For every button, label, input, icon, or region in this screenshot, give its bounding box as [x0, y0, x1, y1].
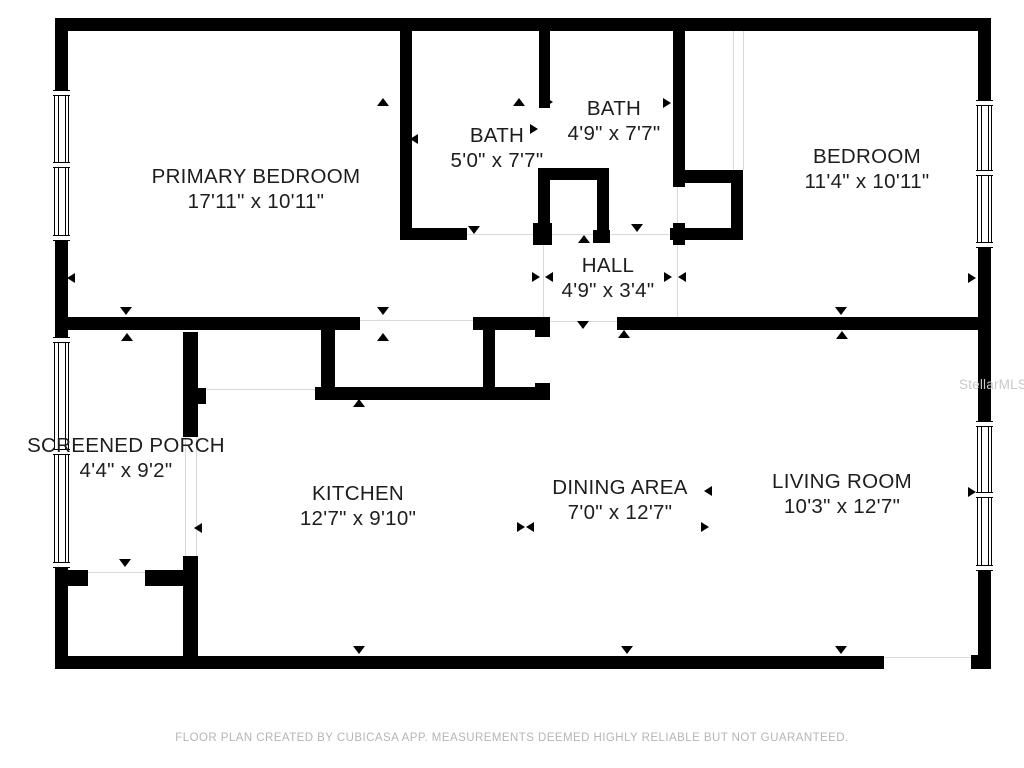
- door-marker-icon: [121, 333, 133, 341]
- room-name: PRIMARY BEDROOM: [152, 164, 361, 189]
- wall-segment: [55, 570, 88, 586]
- room-label-hall-4: HALL4'9" x 3'4": [562, 253, 655, 303]
- wall-segment: [195, 388, 206, 404]
- door-marker-icon: [835, 307, 847, 315]
- room-label-living-room-8: LIVING ROOM10'3" x 12'7": [772, 469, 912, 519]
- door-marker-icon: [377, 307, 389, 315]
- room-label-primary-bedroom-0: PRIMARY BEDROOM17'11" x 10'11": [152, 164, 361, 214]
- footer-disclaimer: FLOOR PLAN CREATED BY CUBICASA APP. MEAS…: [0, 732, 1024, 744]
- door-marker-icon: [410, 134, 418, 144]
- room-dimensions: 12'7" x 9'10": [300, 506, 416, 531]
- room-dimensions: 7'0" x 12'7": [552, 500, 687, 525]
- wall-segment: [533, 223, 552, 245]
- room-boundary-line: [884, 657, 971, 658]
- door-marker-icon: [664, 272, 672, 282]
- wall-segment: [55, 18, 68, 90]
- door-marker-icon: [577, 321, 589, 329]
- door-marker-icon: [545, 97, 553, 107]
- wall-segment: [593, 230, 610, 243]
- wall-segment: [55, 656, 884, 669]
- wall-segment: [321, 330, 335, 387]
- door-marker-icon: [663, 98, 671, 108]
- door-marker-icon: [526, 522, 534, 532]
- door-marker-icon: [968, 273, 976, 283]
- door-marker-icon: [377, 98, 389, 106]
- door-marker-icon: [119, 559, 131, 567]
- door-marker-icon: [678, 272, 686, 282]
- wall-segment: [978, 247, 991, 421]
- window-icon: [54, 90, 69, 240]
- room-name: LIVING ROOM: [772, 469, 912, 494]
- door-marker-icon: [545, 272, 553, 282]
- wall-segment: [673, 31, 685, 187]
- wall-segment: [183, 332, 198, 437]
- door-marker-icon: [618, 330, 630, 338]
- room-boundary-line: [543, 245, 544, 317]
- window-icon: [977, 421, 992, 570]
- door-marker-icon: [120, 307, 132, 315]
- room-boundary-line: [88, 572, 145, 573]
- door-marker-icon: [578, 235, 590, 243]
- room-label-bath-2: BATH4'9" x 7'7": [568, 96, 661, 146]
- room-dimensions: 11'4" x 10'11": [805, 169, 930, 194]
- door-marker-icon: [377, 333, 389, 341]
- wall-segment: [535, 317, 550, 337]
- room-dimensions: 4'4" x 9'2": [27, 458, 225, 483]
- room-name: BATH: [451, 123, 544, 148]
- door-marker-icon: [835, 646, 847, 654]
- door-marker-icon: [517, 522, 525, 532]
- room-dimensions: 4'9" x 3'4": [562, 278, 655, 303]
- wall-segment: [315, 387, 550, 400]
- wall-segment: [145, 570, 198, 586]
- door-marker-icon: [532, 272, 540, 282]
- room-dimensions: 4'9" x 7'7": [568, 121, 661, 146]
- door-marker-icon: [968, 487, 976, 497]
- wall-segment: [617, 317, 991, 330]
- room-label-kitchen-6: KITCHEN12'7" x 9'10": [300, 481, 416, 531]
- door-marker-icon: [704, 486, 712, 496]
- room-label-screened-porch-5: SCREENED PORCH4'4" x 9'2": [27, 433, 225, 483]
- room-dimensions: 17'11" x 10'11": [152, 189, 361, 214]
- door-marker-icon: [621, 646, 633, 654]
- wall-segment: [483, 317, 495, 398]
- wall-segment: [978, 18, 991, 100]
- door-marker-icon: [701, 522, 709, 532]
- room-label-bedroom-3: BEDROOM11'4" x 10'11": [805, 144, 930, 194]
- door-marker-icon: [67, 273, 75, 283]
- room-boundary-line: [733, 31, 734, 170]
- room-name: BEDROOM: [805, 144, 930, 169]
- room-name: SCREENED PORCH: [27, 433, 225, 458]
- door-marker-icon: [353, 646, 365, 654]
- room-boundary-line: [743, 31, 744, 170]
- room-label-bath-1: BATH5'0" x 7'7": [451, 123, 544, 173]
- room-name: HALL: [562, 253, 655, 278]
- door-marker-icon: [468, 226, 480, 234]
- wall-segment: [670, 228, 743, 240]
- door-marker-icon: [513, 98, 525, 106]
- room-dimensions: 10'3" x 12'7": [772, 494, 912, 519]
- door-marker-icon: [353, 399, 365, 407]
- door-marker-icon: [194, 523, 202, 533]
- room-boundary-line: [198, 389, 315, 390]
- stellar-mls-watermark: StellarMLS: [959, 377, 1024, 392]
- room-label-dining-area-7: DINING AREA7'0" x 12'7": [552, 475, 687, 525]
- room-name: KITCHEN: [300, 481, 416, 506]
- room-name: BATH: [568, 96, 661, 121]
- wall-segment: [971, 655, 991, 669]
- room-name: DINING AREA: [552, 475, 687, 500]
- wall-segment: [55, 18, 991, 31]
- room-boundary-line: [360, 320, 473, 321]
- door-marker-icon: [836, 331, 848, 339]
- wall-segment: [55, 317, 360, 330]
- room-boundary-line: [677, 187, 678, 317]
- wall-segment: [400, 228, 467, 240]
- room-boundary-line: [460, 234, 677, 235]
- floor-plan: PRIMARY BEDROOM17'11" x 10'11"BATH5'0" x…: [0, 0, 1024, 768]
- window-icon: [977, 100, 992, 247]
- door-marker-icon: [631, 224, 643, 232]
- room-dimensions: 5'0" x 7'7": [451, 148, 544, 173]
